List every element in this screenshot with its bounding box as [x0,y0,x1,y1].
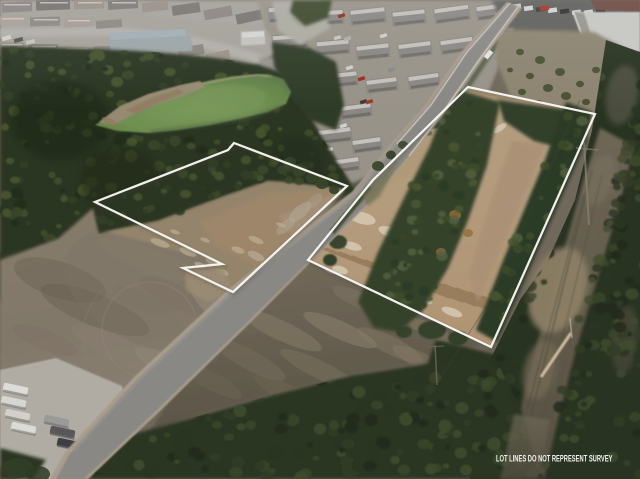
svg-text:LOT LINES DO NOT REPRESENT SUR: LOT LINES DO NOT REPRESENT SURVEY [496,454,613,464]
